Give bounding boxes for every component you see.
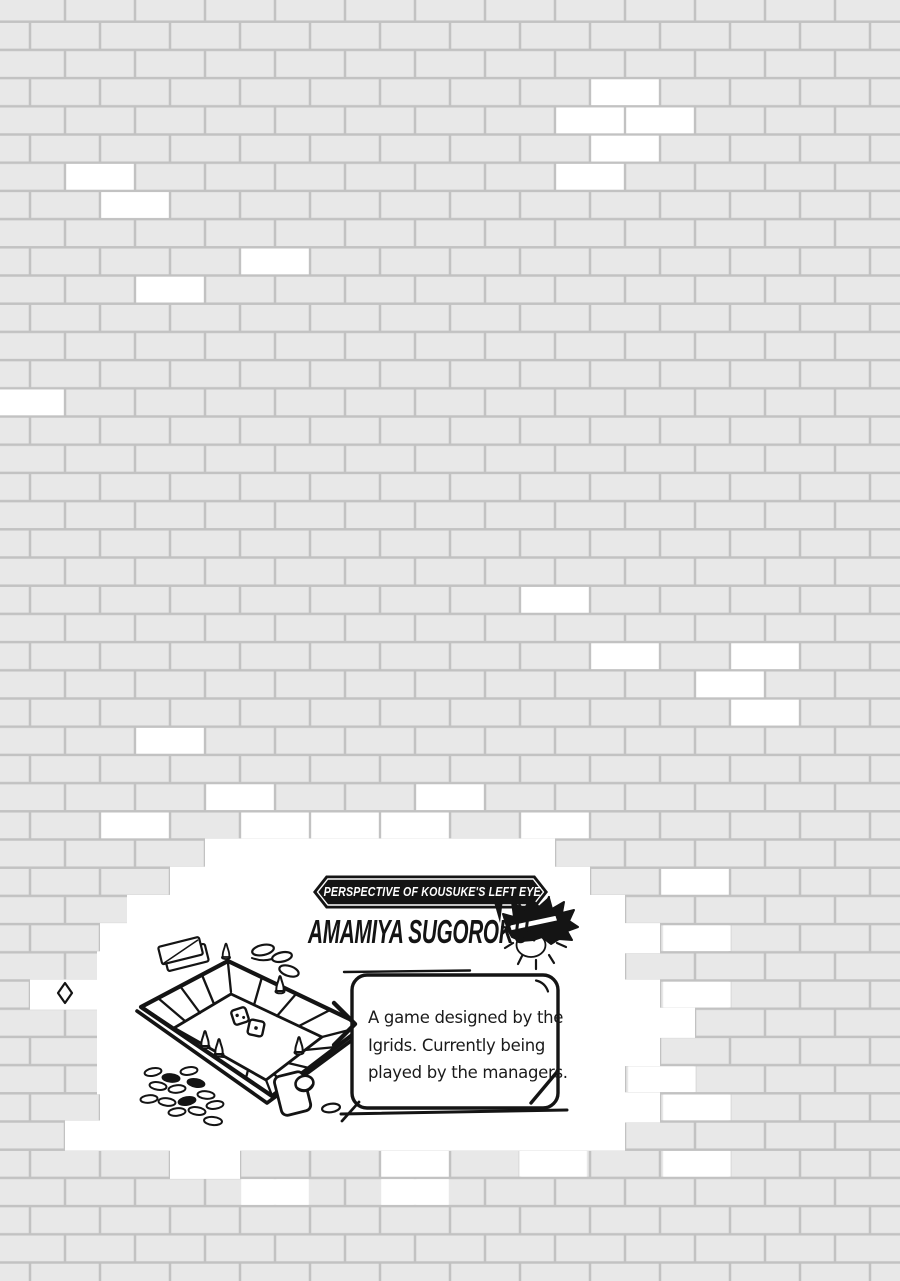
dice-cup-icon — [273, 1069, 320, 1117]
bubble-bottom-double-line — [341, 1110, 567, 1114]
coin-icon — [322, 1103, 341, 1114]
pawn-icon — [222, 944, 230, 959]
coin-pile — [140, 1066, 224, 1126]
pawn-icon — [276, 976, 285, 993]
bubble-corner-stroke — [342, 1102, 359, 1121]
board-game-illustration — [58, 936, 367, 1126]
die-icon — [247, 1019, 265, 1037]
diamond-sparkle-icon — [58, 983, 72, 1003]
page-title: AMAMIYA SUGOROKU — [308, 913, 528, 951]
infobox-line: A game designed by the — [368, 1004, 554, 1032]
infobox-line: Igrids. Currently being — [368, 1032, 554, 1060]
infobox-line: played by the managers. — [368, 1059, 554, 1087]
infobox-text: A game designed by the Igrids. Currently… — [368, 1004, 554, 1087]
banner-label: PERSPECTIVE OF KOUSUKE'S LEFT EYE — [320, 880, 544, 905]
playing-cards-icon — [158, 936, 209, 972]
illustration-layer — [0, 0, 900, 1281]
die-icon — [231, 1007, 250, 1026]
manga-page: PERSPECTIVE OF KOUSUKE'S LEFT EYE AMAMIY… — [0, 0, 900, 1281]
bubble-top-double-line — [344, 971, 470, 973]
